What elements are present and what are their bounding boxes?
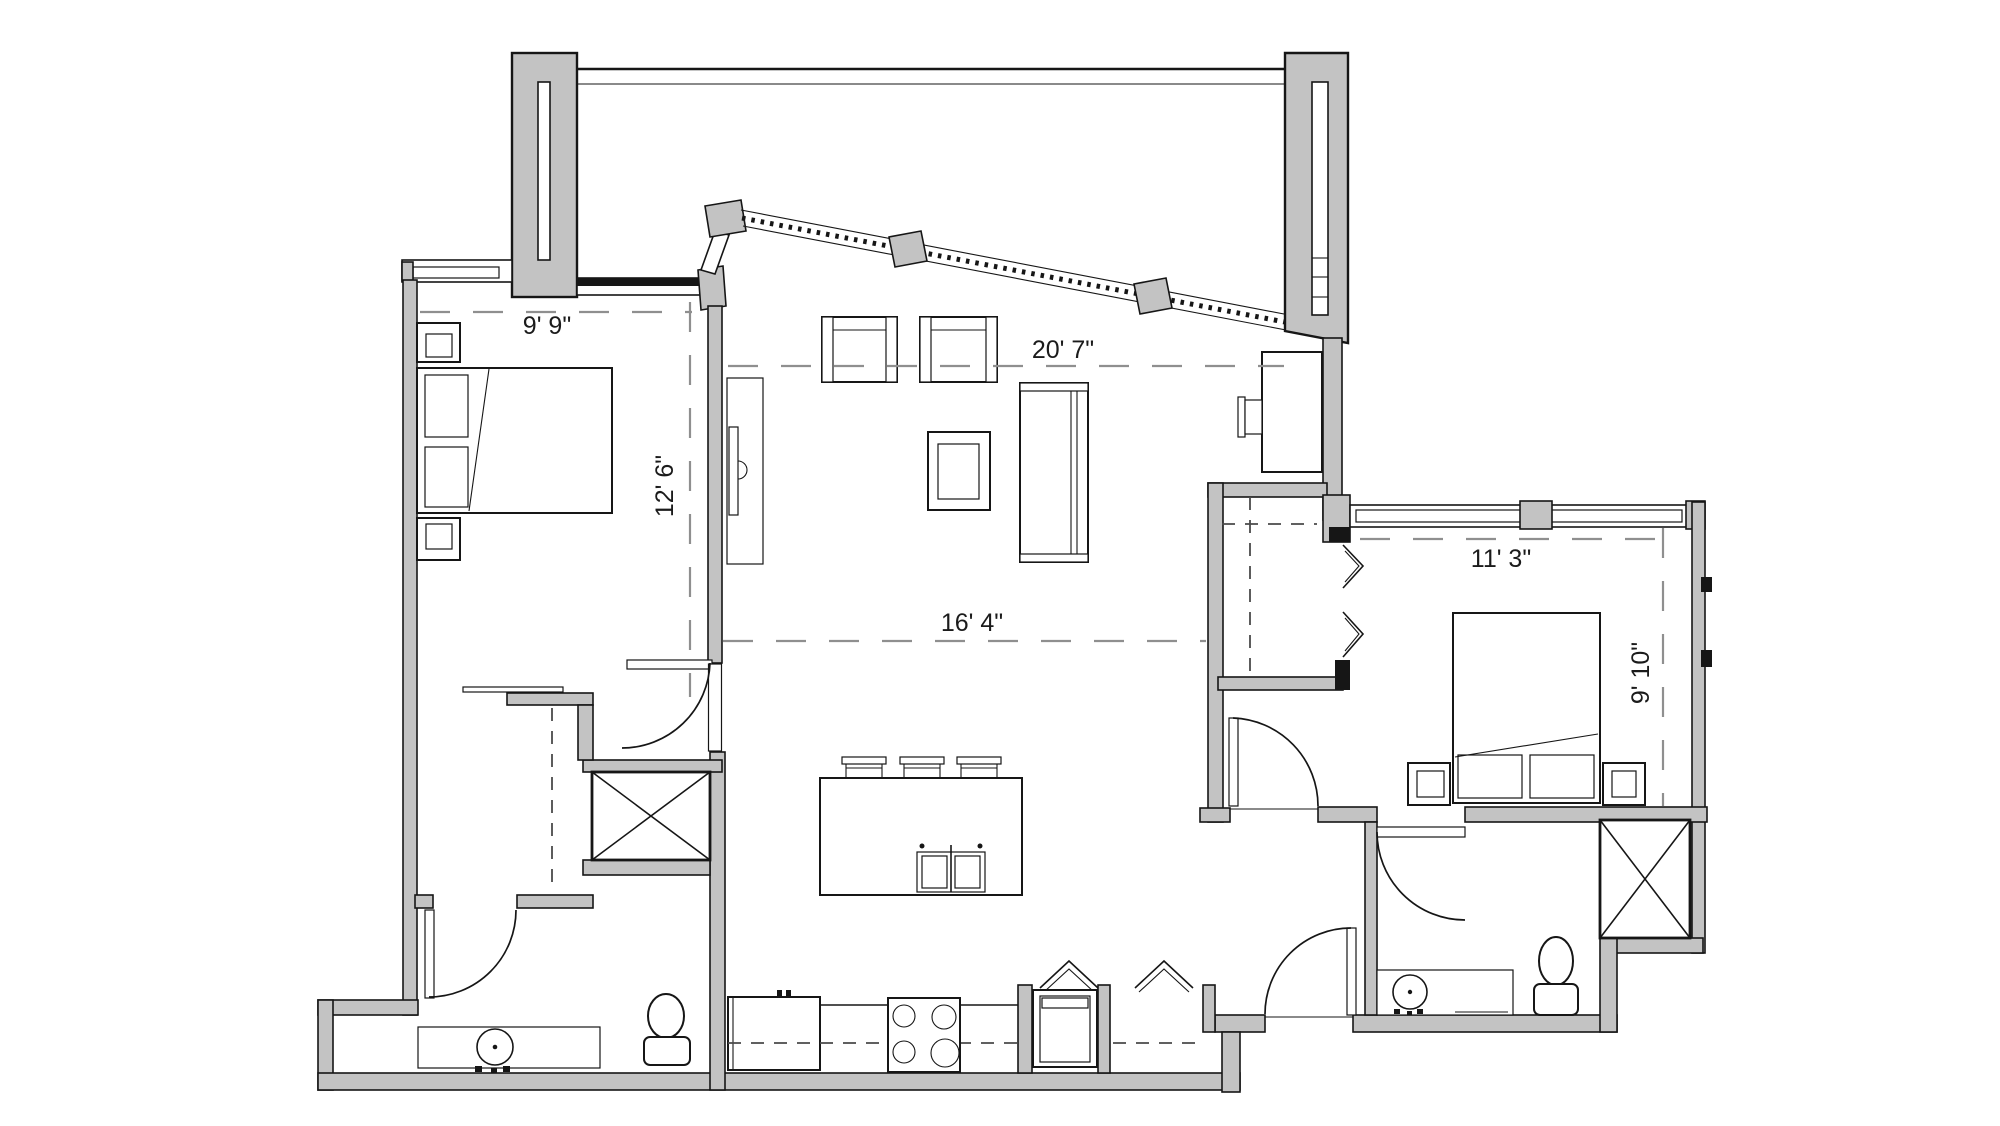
toilet: [1534, 937, 1578, 1015]
floorplan-page: 9' 9" 12' 6" 20' 7" 16' 4" 11' 3" 9' 10": [0, 0, 2000, 1126]
pillow: [425, 375, 468, 437]
tv: [729, 427, 738, 515]
walk-in-closet: [1222, 497, 1317, 675]
armchair: [920, 317, 997, 382]
right-exterior-wall: [1692, 502, 1705, 953]
faucet: [1407, 1011, 1412, 1015]
bathroom2-left-wall: [1365, 822, 1377, 1015]
sofa: [1020, 383, 1088, 562]
closet-wall: [1018, 985, 1032, 1073]
door-swing: [1265, 928, 1351, 1014]
window-mullion: [1134, 278, 1172, 314]
fridge-handle: [777, 990, 782, 997]
bar-stool: [957, 757, 1001, 778]
bedroom-2: [1408, 613, 1645, 805]
bottom-exterior-wall: [318, 1073, 1240, 1090]
wall-cap: [1335, 660, 1350, 690]
closet-wall: [1203, 985, 1215, 1032]
refrigerator: [728, 990, 820, 1070]
armchair: [822, 317, 897, 382]
door-swing: [1377, 832, 1465, 920]
dimension-label-living-depth: 16' 4": [941, 609, 1003, 637]
pillow: [1530, 755, 1594, 798]
door-leaf: [1347, 928, 1356, 1015]
wall-tab: [1701, 650, 1712, 667]
angled-window-wall: [698, 200, 1286, 330]
wall-cap: [1329, 527, 1350, 542]
entry-bottom-wall: [1353, 1015, 1617, 1032]
wall-tab: [1701, 577, 1712, 592]
laundry-closet-doors: [1040, 961, 1098, 992]
kitchen-island: [820, 778, 1022, 895]
toilet-bowl: [1539, 937, 1573, 985]
faucet: [475, 1066, 482, 1072]
faucet: [491, 1068, 497, 1073]
entry-door: [1265, 928, 1356, 1015]
vanity-sink: [418, 1027, 600, 1073]
living-dining: [727, 317, 1322, 564]
dimension-label-bedroom1-width: 9' 9": [523, 312, 571, 340]
bedroom2-door: [1229, 718, 1318, 806]
media-console: [727, 378, 763, 564]
window-post: [705, 200, 746, 237]
glазing-line: [742, 218, 1285, 322]
washer-control-panel: [1042, 998, 1088, 1008]
desk: [1238, 352, 1322, 472]
kitchen: [728, 757, 1022, 1072]
mechanical-shaft: [592, 772, 710, 860]
living-top-wall: [577, 278, 700, 295]
faucet: [1417, 1009, 1423, 1014]
bedroom2-bottom-wall: [1318, 807, 1377, 822]
mechanical-shaft: [1600, 820, 1690, 938]
dimension-label-bedroom2-depth: 9' 10": [1627, 642, 1655, 704]
door-swing: [429, 910, 516, 997]
bed-queen: [1453, 613, 1600, 803]
drain: [1408, 990, 1412, 994]
dimension-label-living-width: 20' 7": [1032, 336, 1094, 364]
bathroom-1: [418, 994, 690, 1073]
window-segment: [701, 231, 729, 274]
floorplan-drawing: 9' 9" 12' 6" 20' 7" 16' 4" 11' 3" 9' 10": [0, 0, 2000, 1126]
bathroom2-door: [1377, 827, 1465, 920]
closet-shelf-edge: [463, 687, 563, 692]
toilet-tank: [644, 1037, 690, 1065]
dressing-top-wall: [507, 693, 593, 705]
bedroom1-right-wall: [708, 306, 722, 663]
shaft-bottom-wall: [1612, 938, 1703, 953]
bathroom2-right-wall: [1600, 938, 1617, 1032]
faucet: [503, 1066, 510, 1072]
drain: [493, 1045, 498, 1050]
kitchen-left-wall: [710, 752, 725, 1090]
pillow: [425, 447, 468, 507]
left-column: [512, 53, 577, 297]
dimension-label-bedroom2-width: 11' 3": [1471, 545, 1531, 573]
pillow: [1458, 755, 1522, 798]
faucet-dot: [920, 844, 925, 849]
nightstand: [417, 323, 460, 362]
bedroom2-window: [1350, 501, 1705, 529]
door-swing: [1233, 718, 1318, 806]
bathroom-2: [1377, 937, 1578, 1015]
coffee-table: [928, 432, 990, 510]
coat-closet-doors: [1135, 961, 1193, 992]
nightstand: [1603, 763, 1645, 805]
laundry-closet: [1033, 990, 1097, 1067]
sofa-arm: [1020, 383, 1088, 391]
dressing-right-wall: [578, 705, 593, 760]
bedroom1-window: [402, 260, 512, 282]
dimension-label-bedroom1-depth: 12' 6": [651, 455, 679, 517]
faucet-dot: [978, 844, 983, 849]
door-header: [627, 660, 712, 669]
faucet: [1394, 1009, 1400, 1014]
closet-top-wall: [1208, 483, 1327, 497]
bedroom-1: [417, 323, 612, 890]
bed-queen: [417, 368, 612, 513]
door-leaf: [1229, 718, 1238, 806]
shaft-bottom-wall: [583, 860, 710, 875]
door-leaf: [1377, 827, 1465, 837]
toilet-tank: [1534, 984, 1578, 1015]
bathroom1-door: [425, 910, 516, 998]
closet-wall: [1098, 985, 1110, 1073]
window-mullion: [889, 231, 927, 267]
fridge-handle: [786, 990, 791, 997]
right-column: [1285, 53, 1348, 343]
bar-stool: [842, 757, 886, 778]
closet-bifold-doors: [1343, 545, 1363, 657]
desk-chair-back: [1238, 397, 1245, 437]
hall-wall: [1208, 483, 1223, 822]
nightstand: [417, 518, 460, 560]
entry-step-wall: [1222, 1032, 1240, 1092]
door-swing: [622, 663, 710, 748]
stove: [888, 998, 960, 1072]
closet-bottom-wall: [1218, 677, 1343, 690]
door-leaf: [709, 664, 722, 751]
window-mullion: [1520, 501, 1552, 529]
bedroom1-door: [622, 660, 722, 751]
bedroom2-bottom-wall: [1200, 808, 1230, 822]
entry-bottom-wall: [1215, 1015, 1265, 1032]
sofa-arm: [1020, 554, 1088, 562]
nightstand: [1408, 763, 1450, 805]
desk-chair-seat: [1245, 400, 1262, 434]
bar-stool: [900, 757, 944, 778]
shaft-top-wall: [583, 760, 722, 772]
dressing-bottom-wall: [517, 895, 593, 908]
dressing-bottom-wall: [415, 895, 433, 908]
door-leaf: [425, 910, 434, 998]
toilet: [644, 994, 690, 1065]
vanity-sink: [1377, 970, 1513, 1015]
toilet-bowl: [648, 994, 684, 1038]
